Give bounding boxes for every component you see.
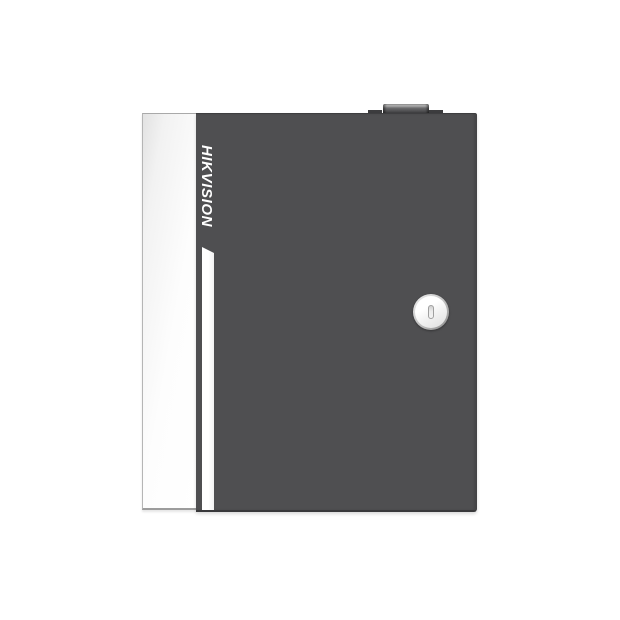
- keyhole-lock: [413, 294, 449, 330]
- lock-face: [415, 296, 447, 328]
- brand-logo: HIKVISION: [196, 131, 216, 241]
- side-panel: [142, 113, 197, 510]
- decorative-stripe: [202, 247, 214, 510]
- keyhole-icon: [428, 305, 434, 319]
- product-photo: HIKVISION: [0, 0, 620, 620]
